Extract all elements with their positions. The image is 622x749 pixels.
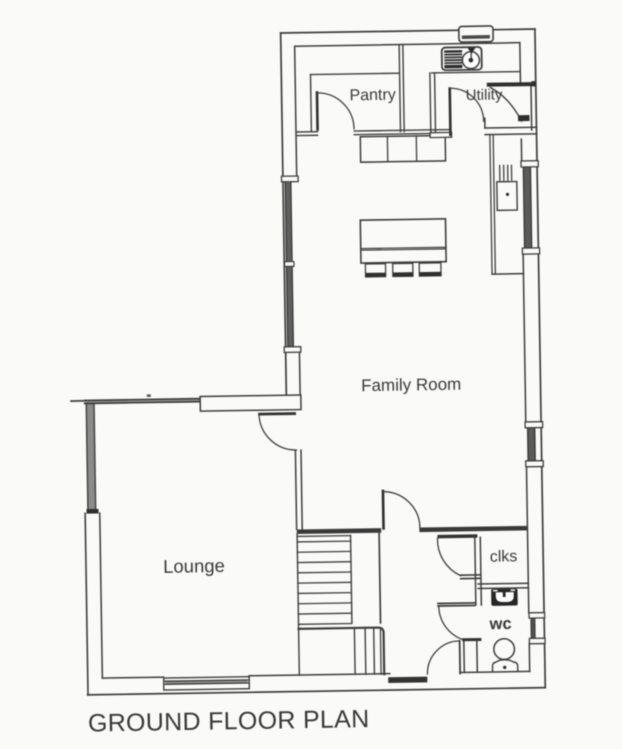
svg-text:wc: wc [488,615,511,633]
svg-text:Lounge: Lounge [163,555,225,577]
svg-text:Family Room: Family Room [361,375,461,396]
svg-text:Utility: Utility [466,86,503,104]
svg-text:GROUND FLOOR PLAN: GROUND FLOOR PLAN [88,705,370,737]
svg-text:clks: clks [490,548,518,565]
svg-text:Pantry: Pantry [349,87,396,105]
